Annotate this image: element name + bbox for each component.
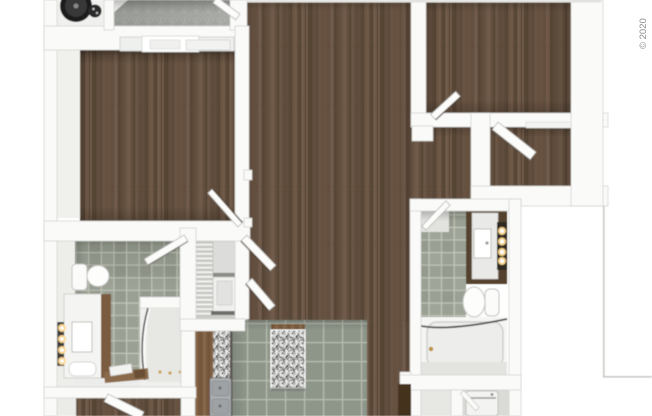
svg-text:© 2020: © 2020: [638, 18, 649, 49]
